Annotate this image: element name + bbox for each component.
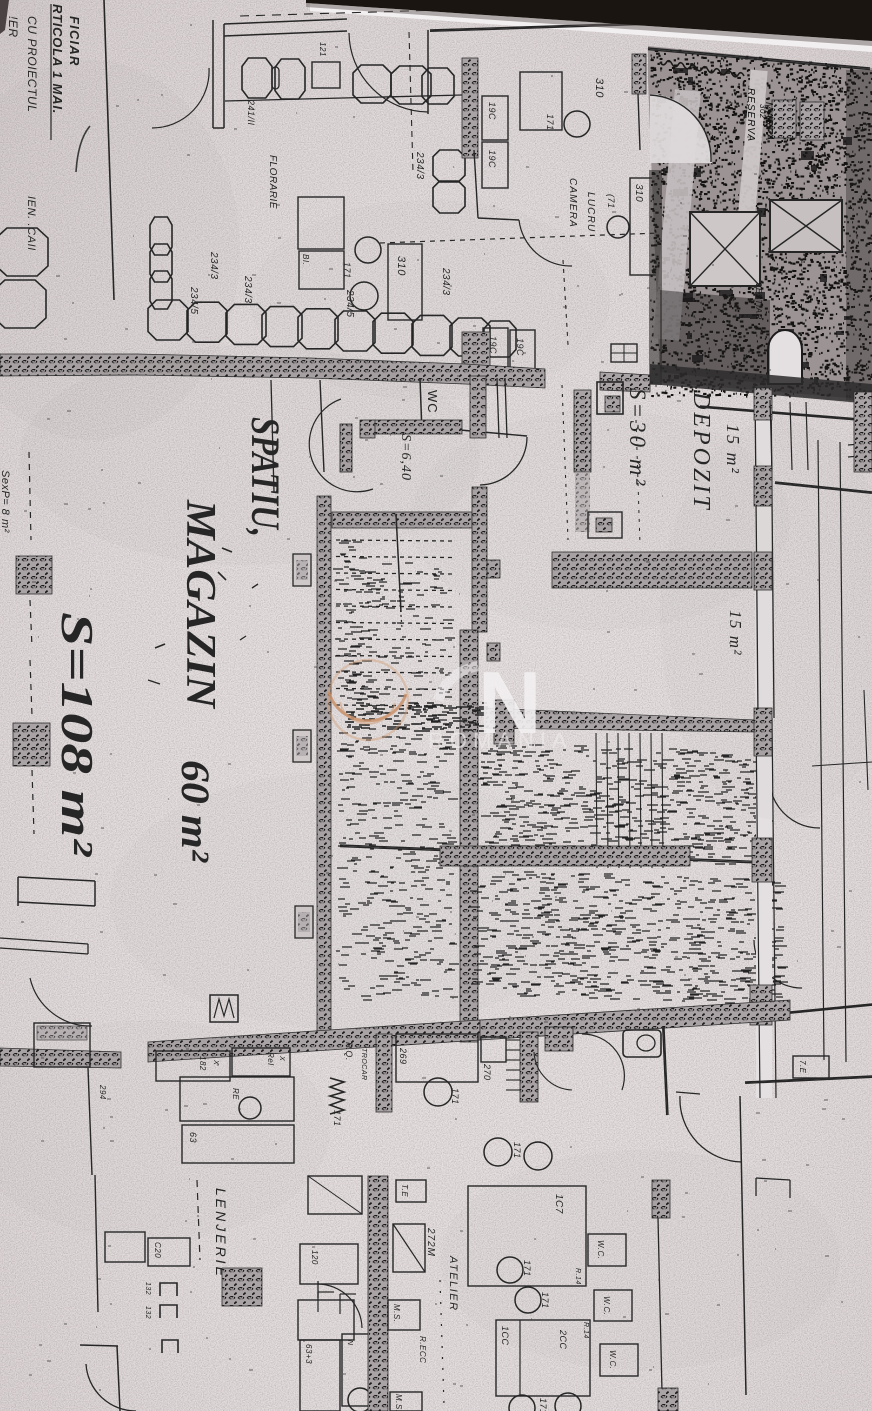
- svg-text:N: N: [346, 1340, 353, 1346]
- svg-text:FLORARIE: FLORARIE: [267, 155, 278, 209]
- svg-text:C20: C20: [153, 1242, 162, 1258]
- svg-text:171: 171: [450, 1088, 460, 1105]
- svg-text:(71: (71: [606, 194, 616, 209]
- svg-text:MARFA: MARFA: [763, 102, 774, 141]
- svg-text:R.ECC: R.ECC: [418, 1336, 427, 1363]
- svg-text:FICIAR: FICIAR: [67, 16, 82, 67]
- svg-text:S=108 m²: S=108 m²: [52, 612, 103, 858]
- svg-text:RESERVA: RESERVA: [745, 88, 756, 142]
- svg-text:121: 121: [318, 42, 327, 57]
- svg-text:T.E: T.E: [400, 1184, 409, 1197]
- svg-text:171: 171: [332, 1110, 342, 1127]
- svg-text:M.S.: M.S.: [394, 1394, 403, 1411]
- svg-text:120: 120: [310, 1250, 319, 1265]
- svg-text:171: 171: [545, 114, 555, 131]
- svg-text:P.Q.: P.Q.: [344, 1042, 354, 1061]
- svg-text:269: 269: [398, 1047, 408, 1065]
- svg-text:19C: 19C: [487, 150, 497, 168]
- svg-text:272M: 272M: [425, 1227, 436, 1257]
- svg-text:LUCRU: LUCRU: [585, 192, 596, 232]
- svg-text:M.S.: M.S.: [392, 1304, 401, 1322]
- svg-text:310: 310: [593, 78, 605, 98]
- svg-text:7.E: 7.E: [798, 1060, 807, 1074]
- svg-text:CAMERA: CAMERA: [567, 178, 578, 228]
- svg-text:171: 171: [512, 1142, 522, 1159]
- svg-text:ROMANIA: ROMANIA: [428, 728, 573, 753]
- svg-text:132: 132: [144, 1306, 151, 1319]
- svg-text:!ER: !ER: [6, 16, 20, 38]
- svg-text:63+3: 63+3: [304, 1344, 313, 1364]
- svg-text:SexP= 8 m²: SexP= 8 m²: [0, 470, 11, 533]
- svg-text:234/3: 234/3: [414, 151, 425, 180]
- svg-text:270: 270: [482, 1063, 492, 1081]
- svg-text:132: 132: [144, 1282, 151, 1295]
- svg-text:171: 171: [538, 1398, 548, 1411]
- svg-text:19C: 19C: [487, 102, 497, 120]
- svg-text:TROCAR: TROCAR: [360, 1048, 367, 1081]
- svg-text:310: 310: [633, 184, 644, 202]
- svg-text:241/II: 241/II: [246, 99, 256, 126]
